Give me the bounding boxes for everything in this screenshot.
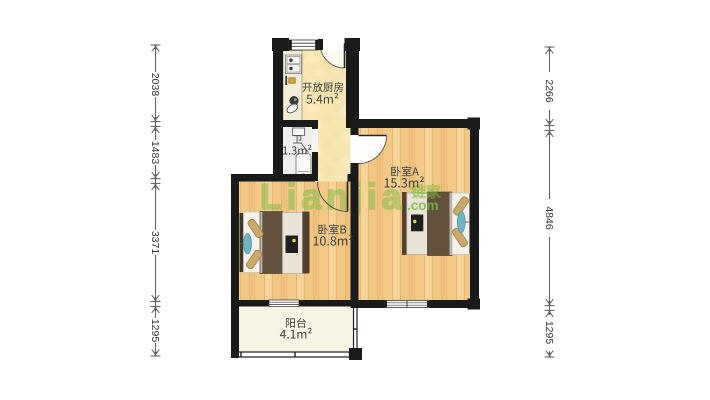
svg-text:2266: 2266 (543, 79, 555, 103)
svg-text:4846: 4846 (543, 206, 555, 230)
svg-text:2038: 2038 (149, 73, 161, 97)
svg-text:Lianjia: Lianjia (260, 176, 406, 217)
svg-text:3371: 3371 (149, 231, 161, 255)
svg-text:1483: 1483 (149, 141, 161, 165)
svg-text:.com: .com (407, 198, 439, 213)
svg-text:1295: 1295 (149, 319, 161, 343)
svg-text:1295: 1295 (543, 321, 555, 345)
